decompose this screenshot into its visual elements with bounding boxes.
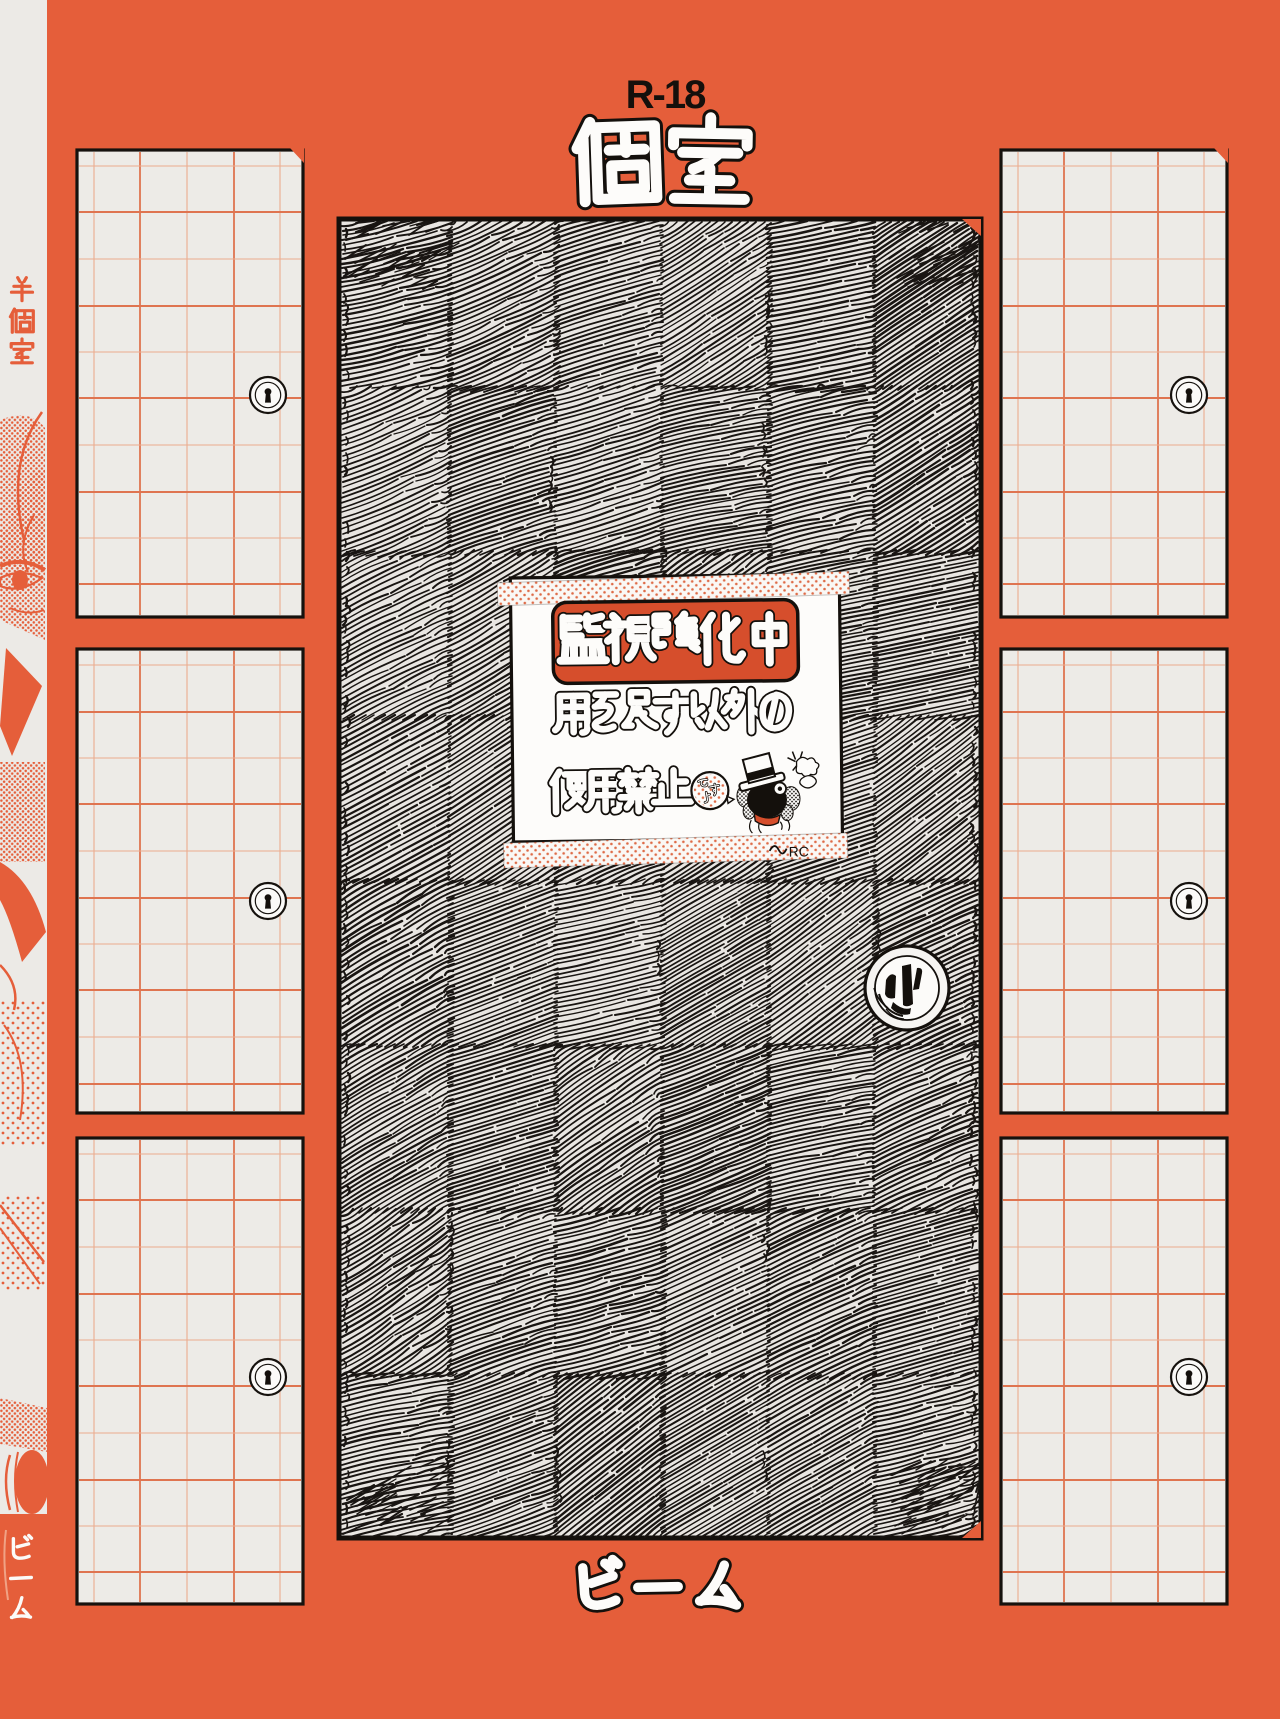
svg-text:R-18: R-18 [626,73,706,117]
svg-text:RC: RC [789,843,809,859]
